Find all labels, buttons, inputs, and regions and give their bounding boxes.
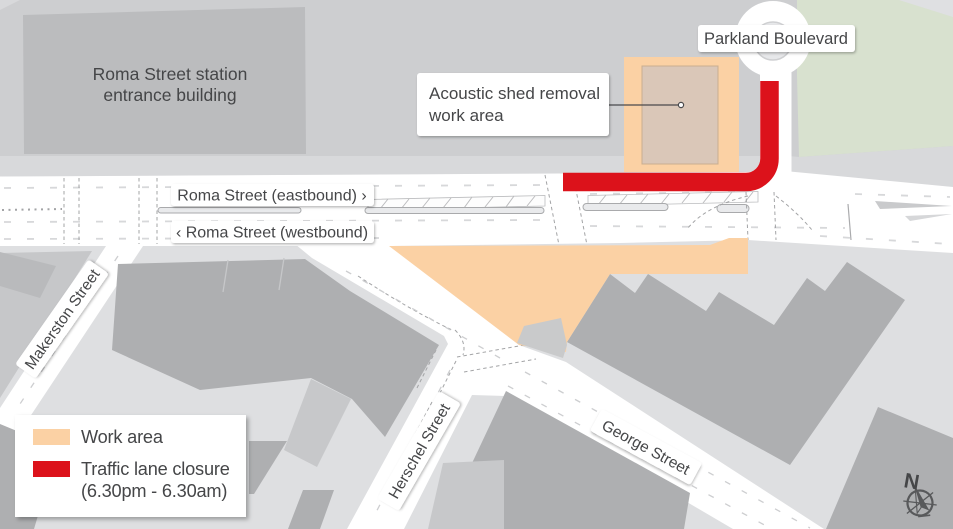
svg-text:entrance building: entrance building <box>103 85 236 105</box>
svg-text:Roma Street (eastbound) ›: Roma Street (eastbound) › <box>177 188 366 205</box>
svg-text:‹ Roma Street (westbound): ‹ Roma Street (westbound) <box>176 225 368 242</box>
svg-text:Traffic lane closure: Traffic lane closure <box>81 459 230 479</box>
svg-text:Parkland Boulevard: Parkland Boulevard <box>704 30 848 48</box>
svg-text:Roma Street station: Roma Street station <box>93 64 248 84</box>
svg-text:Acoustic shed removal: Acoustic shed removal <box>429 84 600 103</box>
svg-text:(6.30pm - 6.30am): (6.30pm - 6.30am) <box>81 481 227 501</box>
svg-text:Work area: Work area <box>81 427 164 447</box>
svg-text:work area: work area <box>428 106 504 125</box>
